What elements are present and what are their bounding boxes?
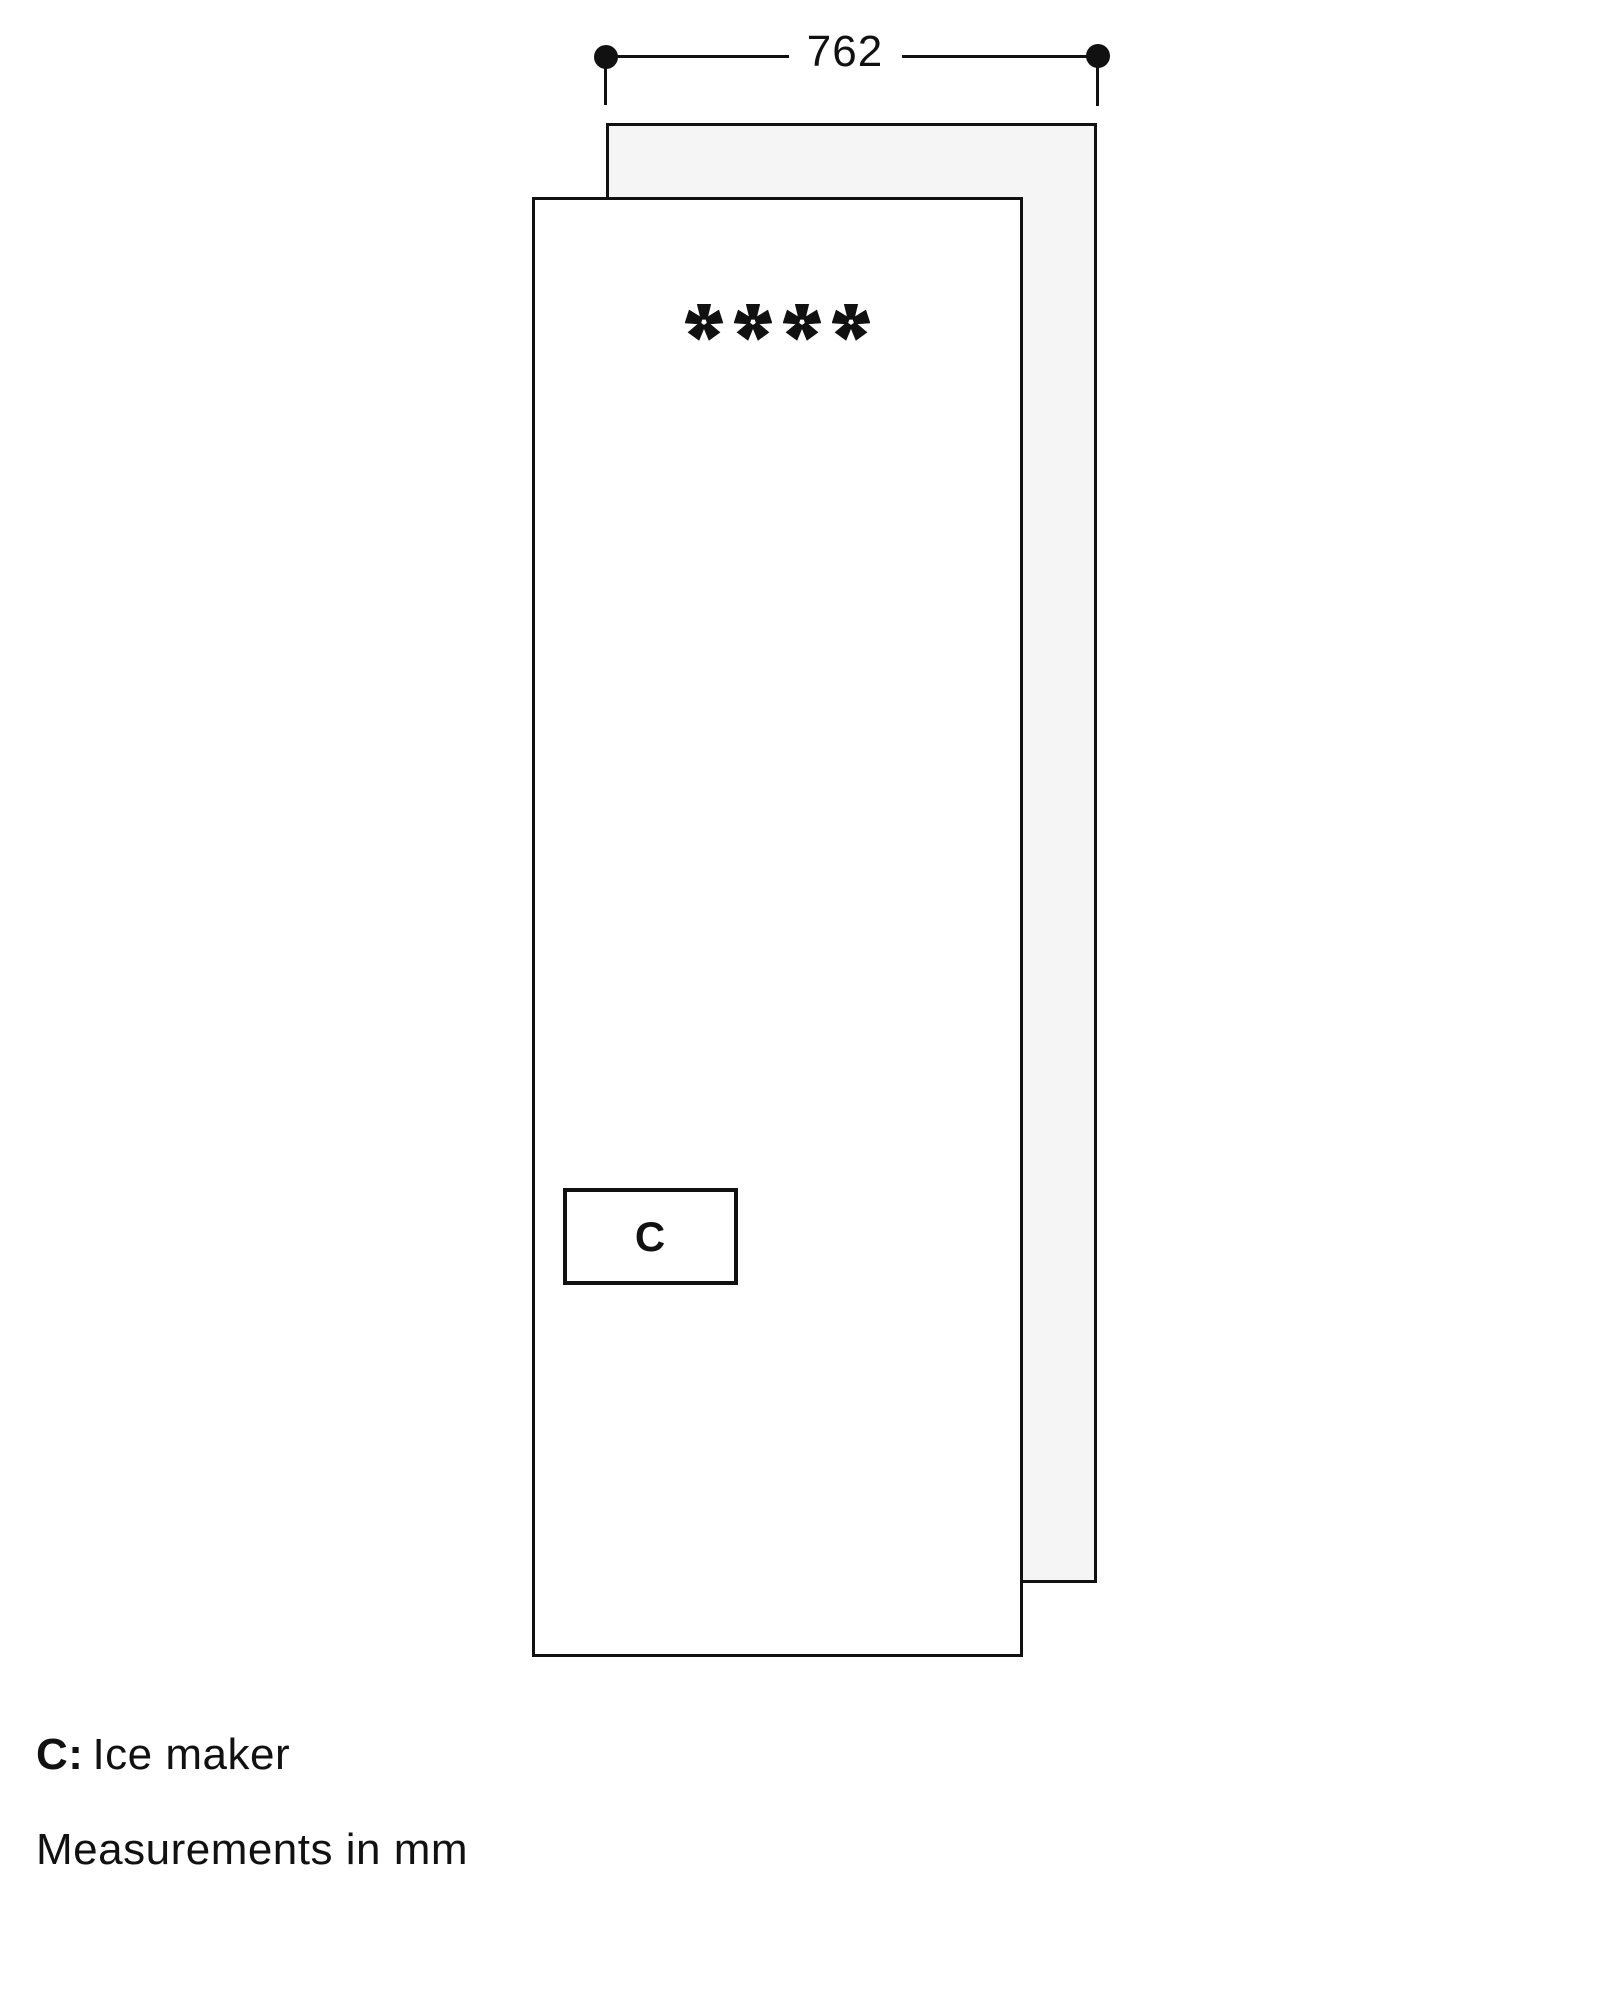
dimension-value: 762 [765, 30, 925, 74]
legend-item-ice-maker: C:Ice maker [36, 1733, 290, 1777]
ice-maker-box: C [563, 1188, 738, 1285]
freezer-star-icon [685, 303, 723, 341]
legend-key: C: [36, 1730, 83, 1779]
measurements-note: Measurements in mm [36, 1828, 468, 1872]
extension-line-right [1096, 67, 1099, 106]
appliance-door-panel: C [532, 197, 1023, 1657]
freezer-star-rating [535, 303, 1020, 341]
dimension-endpoint-dot-right [1086, 44, 1110, 68]
freezer-star-icon [734, 303, 772, 341]
freezer-star-icon [783, 303, 821, 341]
appliance-dimension-diagram: 762 C C:Ice maker Measurements in mm [0, 0, 1621, 2000]
freezer-star-icon [832, 303, 870, 341]
extension-line-left [604, 68, 607, 105]
ice-maker-box-label: C [635, 1216, 666, 1258]
dimension-line-left-segment [613, 55, 789, 58]
dimension-line-right-segment [902, 55, 1090, 58]
legend-label: Ice maker [92, 1730, 290, 1779]
